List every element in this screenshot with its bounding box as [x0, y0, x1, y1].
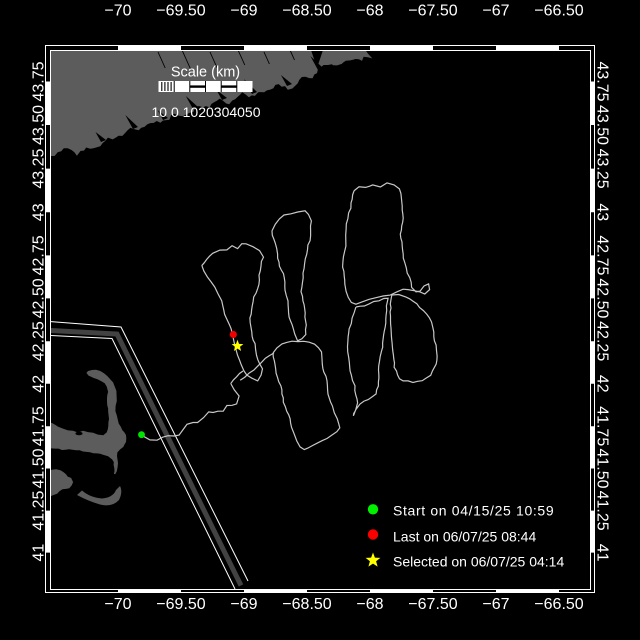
svg-text:43.50: 43.50: [594, 105, 611, 145]
svg-text:Scale (km): Scale (km): [171, 65, 240, 81]
svg-text:−69.50: −69.50: [156, 3, 205, 20]
svg-text:−67: −67: [482, 596, 509, 613]
svg-text:−68.50: −68.50: [282, 596, 331, 613]
svg-text:−67: −67: [482, 3, 509, 20]
svg-text:Selected on 06/07/25 04:14: Selected on 06/07/25 04:14: [393, 554, 564, 570]
svg-text:41.50: 41.50: [31, 448, 48, 488]
svg-text:41.75: 41.75: [594, 406, 611, 446]
svg-text:42: 42: [594, 375, 611, 393]
svg-text:41.50: 41.50: [594, 448, 611, 488]
svg-text:−70: −70: [104, 3, 131, 20]
svg-text:41.25: 41.25: [594, 491, 611, 531]
svg-text:43.75: 43.75: [594, 61, 611, 101]
svg-text:42.50: 42.50: [31, 278, 48, 318]
svg-text:10 0 1020304050: 10 0 1020304050: [152, 104, 261, 120]
svg-text:−68: −68: [356, 596, 383, 613]
svg-text:41: 41: [594, 544, 611, 562]
svg-text:41: 41: [31, 544, 48, 562]
svg-text:−66.50: −66.50: [534, 596, 583, 613]
svg-text:42.75: 42.75: [31, 235, 48, 275]
svg-text:43.25: 43.25: [594, 149, 611, 189]
svg-text:−66.50: −66.50: [534, 3, 583, 20]
svg-text:−69: −69: [230, 3, 257, 20]
svg-text:42.25: 42.25: [31, 321, 48, 361]
svg-text:−69.50: −69.50: [156, 596, 205, 613]
svg-text:43: 43: [31, 203, 48, 221]
svg-text:−69: −69: [230, 596, 257, 613]
svg-text:42.50: 42.50: [594, 278, 611, 318]
svg-text:−67.50: −67.50: [408, 3, 457, 20]
svg-text:43.50: 43.50: [31, 105, 48, 145]
svg-text:43.75: 43.75: [31, 61, 48, 101]
svg-text:−70: −70: [104, 596, 131, 613]
svg-text:−68.50: −68.50: [282, 3, 331, 20]
svg-text:43: 43: [594, 203, 611, 221]
svg-text:41.75: 41.75: [31, 406, 48, 446]
svg-text:Start on 04/15/25 10:59: Start on 04/15/25 10:59: [393, 503, 554, 519]
svg-text:42.75: 42.75: [594, 235, 611, 275]
svg-text:−67.50: −67.50: [408, 596, 457, 613]
svg-text:42.25: 42.25: [594, 321, 611, 361]
svg-text:Last on 06/07/25 08:44: Last on 06/07/25 08:44: [393, 529, 536, 545]
svg-text:42: 42: [31, 375, 48, 393]
svg-text:41.25: 41.25: [31, 490, 48, 530]
svg-text:−68: −68: [356, 3, 383, 20]
svg-text:43.25: 43.25: [31, 148, 48, 188]
